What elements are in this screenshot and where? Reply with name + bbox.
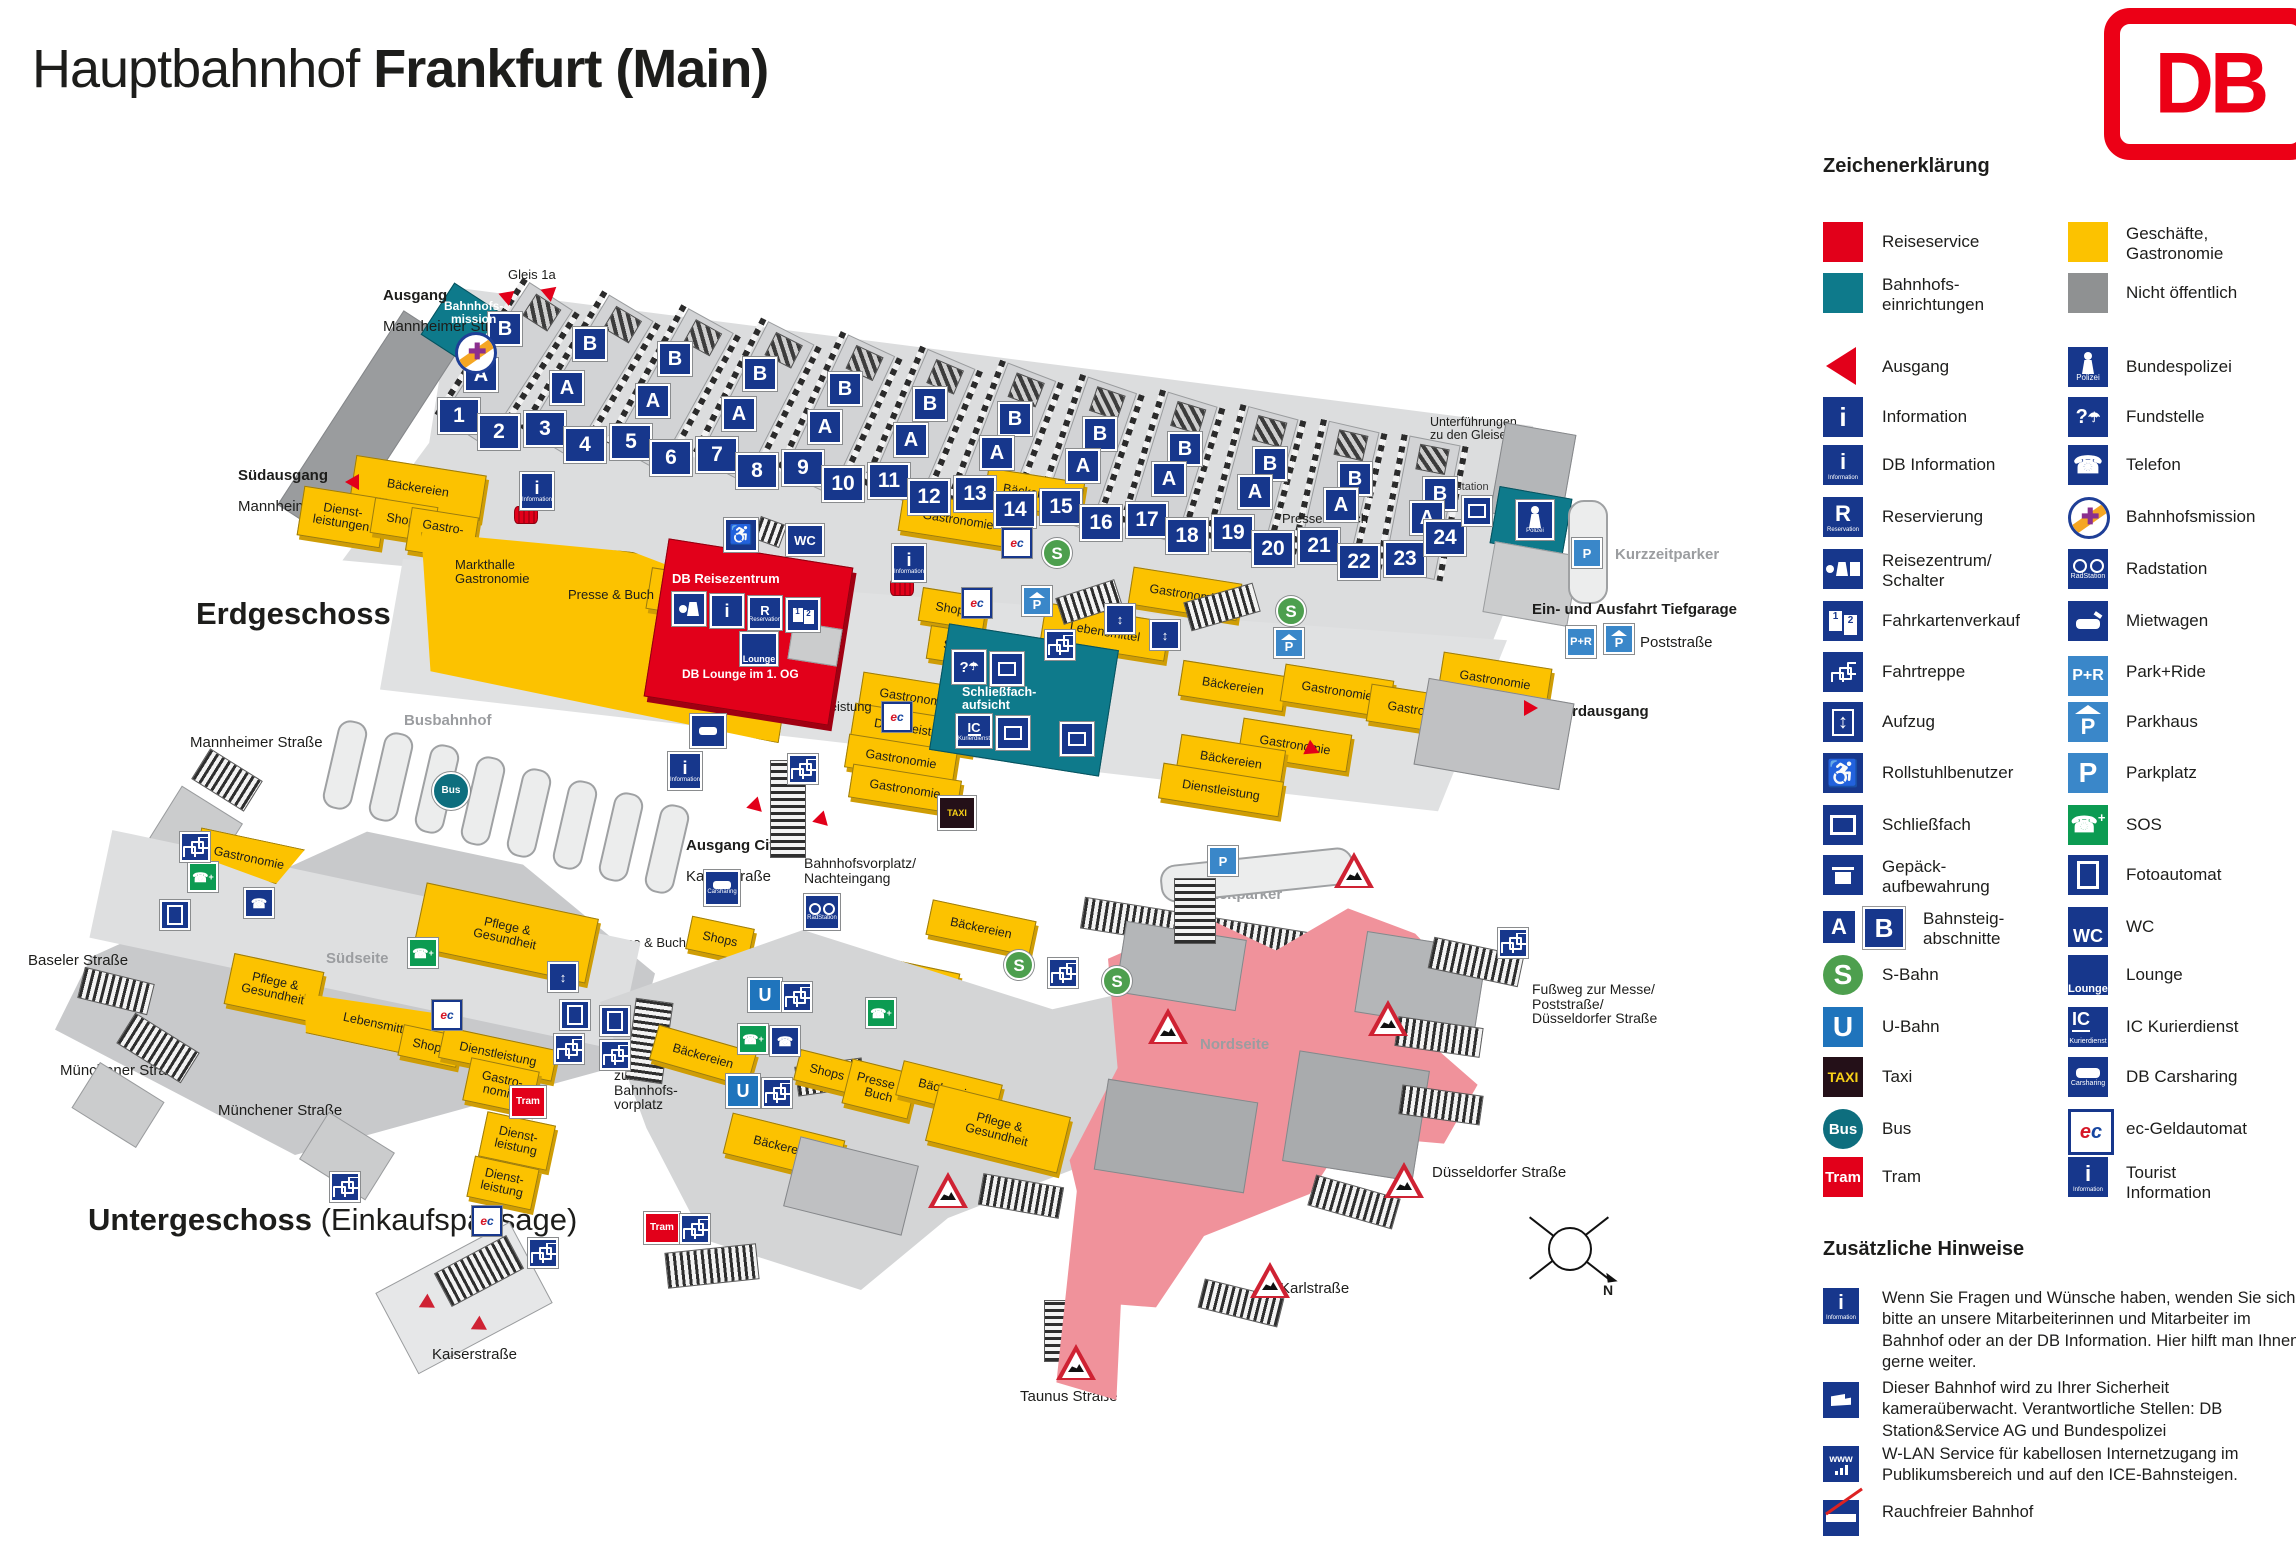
platform-number: 19 (1212, 515, 1254, 551)
escalator-icon (1048, 958, 1078, 988)
esc-glyph (530, 1243, 556, 1263)
parkhaus-icon: P (1022, 586, 1052, 616)
north-block (1282, 1050, 1430, 1181)
bus-bay (366, 730, 415, 824)
schliessfach-icon (1060, 722, 1094, 756)
polizei-glyph: Polizei (2076, 374, 2100, 382)
mietwagen-icon (2068, 601, 2108, 641)
section-marker-a: A (1066, 449, 1100, 483)
esc-glyph (784, 987, 810, 1007)
i-glyph: i (1838, 1292, 1844, 1315)
ic-kurierdienst-icon: ICKurierdienst (956, 714, 992, 748)
wc-glyph: WC (794, 534, 816, 547)
section-marker-b: B (573, 327, 607, 361)
section-marker-b: B (913, 387, 947, 421)
sos-icon: ☎+ (866, 998, 896, 1028)
ec-c-glyph: c (977, 597, 984, 609)
page-title-regular: Hauptbahnhof (32, 39, 373, 99)
roof-glyph (2075, 705, 2101, 714)
escalator-icon (528, 1238, 558, 1268)
taxi-icon: TAXI (1823, 1057, 1863, 1097)
elevator-icon: ↕ (1105, 604, 1135, 634)
u-bahn-icon: U (748, 978, 782, 1012)
shelf-glyph (1832, 867, 1854, 870)
legend-label: Bundespolizei (2126, 357, 2232, 377)
ec-c-glyph: c (447, 1009, 454, 1021)
stairs-graphic (1174, 878, 1216, 944)
esc-glyph (332, 1177, 358, 1197)
information-icon: iInformation (668, 752, 702, 790)
platform-number: 20 (1252, 531, 1294, 567)
exit-arrow (345, 474, 359, 490)
legend-label: U-Bahn (1882, 1017, 1940, 1037)
information-icon: i (1823, 397, 1863, 437)
bahnhofseinrichtungen-swatch (1823, 273, 1863, 313)
reiseservice-swatch (1823, 222, 1863, 262)
s-bahn-icon: S (1004, 950, 1034, 980)
legend-label: WC (2126, 917, 2154, 937)
legend-label: Parkplatz (2126, 763, 2197, 783)
legend-label: Mietwagen (2126, 611, 2208, 631)
legend-label: Park+Ride (2126, 662, 2206, 682)
ec-e-glyph: e (970, 597, 977, 609)
platform-number: 11 (868, 463, 910, 499)
p-glyph: P (2079, 757, 2098, 789)
u-bahn-icon: U (726, 1074, 760, 1108)
untergeschoss-bold: Untergeschoss (88, 1202, 312, 1237)
p-glyph: P (1033, 598, 1042, 611)
ec-geldautomat-icon: ec (472, 1206, 502, 1236)
ec-e-glyph: e (440, 1009, 447, 1021)
mission-cross: ✚ (2081, 504, 2099, 530)
shop-baeckereien: Bäckereien (925, 899, 1036, 956)
section-marker-a: A (636, 384, 670, 418)
platform-number: 16 (1080, 505, 1122, 541)
shop-presse-buch (1250, 648, 1254, 652)
compass: N (1519, 1198, 1619, 1298)
db-logo-text: DB (2155, 35, 2265, 134)
reisezentrum-icon (672, 592, 706, 626)
page-title-bold: Frankfurt (Main) (373, 39, 768, 99)
stairs-graphic (1307, 1174, 1400, 1229)
ic-glyph: IC (968, 721, 981, 736)
note-text: Dieser Bahnhof wird zu Ihrer Sicherheit … (1882, 1378, 2296, 1442)
exit-arrow (1524, 700, 1538, 716)
wheelchair-icon: ♿ (724, 518, 758, 552)
legend-label: Tourist Information (2126, 1163, 2211, 1203)
shop-label: Gastronomie (1301, 679, 1374, 703)
bundespolizei-icon: Polizei (2068, 347, 2108, 387)
esc-glyph (602, 1045, 628, 1065)
information-glyph: Information (1826, 1315, 1856, 1321)
parkplatz-icon: P (2068, 753, 2108, 793)
carsharing-glyph: Carsharing (2071, 1080, 2105, 1087)
shop-label: Pflege & Gesundheit (964, 1109, 1032, 1149)
compass-north-arrow (1606, 1271, 1617, 1282)
platform-number: 17 (1126, 502, 1168, 538)
fotoautomat-icon (160, 900, 190, 930)
tram-glyph: Tram (650, 1223, 674, 1233)
note-text: W-LAN Service für kabellosen Internetzug… (1882, 1444, 2296, 1487)
legend-label: Fahrtreppe (1882, 662, 1965, 682)
s-bahn-icon: S (1042, 538, 1072, 568)
taxi-icon: TAXI (938, 796, 976, 830)
stairs-graphic (978, 1173, 1064, 1219)
information-icon: iInformation (520, 472, 554, 510)
ec-geldautomat-icon: ec (962, 588, 992, 618)
radstation-glyph: RadStation (2071, 573, 2106, 580)
bus-glyph: Bus (442, 786, 461, 796)
person-glyph (1531, 506, 1539, 514)
bahnsteigabschnitte-icon: A B (1823, 907, 1913, 947)
section-marker-a: A (1238, 475, 1272, 509)
section-a-glyph: A (1823, 911, 1855, 943)
esc-glyph (790, 759, 816, 779)
fahrtreppe-icon (1823, 652, 1863, 692)
telefon-icon: ☎ (770, 1026, 800, 1056)
muenchener-label-2: Münchener Straße (218, 1102, 342, 1119)
page-title: Hauptbahnhof Frankfurt (Main) (32, 38, 768, 100)
suedausgang-bold: Südausgang (238, 467, 328, 484)
platform-number: 23 (1384, 541, 1426, 577)
kurzzeitparker-label: Kurzzeitparker (1615, 546, 1719, 563)
legend-label: Fahrkartenverkauf (1882, 611, 2020, 631)
escalator-icon (554, 1034, 584, 1064)
ticket1-glyph: 1 (793, 608, 803, 622)
fundstelle-icon: ?☂ (2068, 397, 2108, 437)
key-glyph (2094, 611, 2103, 619)
legend-label: IC Kurierdienst (2126, 1017, 2238, 1037)
ic-glyph: IC (2072, 1009, 2090, 1032)
counter-glyph (1850, 562, 1860, 576)
legend-label: S-Bahn (1882, 965, 1939, 985)
locker-glyph (1068, 732, 1086, 746)
locker-glyph (1468, 504, 1486, 518)
mission-circle: ✚ (2068, 497, 2110, 539)
esc-step (198, 837, 208, 849)
stairs-graphic (664, 1243, 759, 1288)
reservierung-icon: RReservation (1823, 497, 1863, 537)
ec-geldautomat-icon: ec (432, 1000, 462, 1030)
esc-glyph (1830, 662, 1856, 682)
duesseldorfer-label: Düsseldorfer Straße (1432, 1164, 1566, 1181)
u-glyph: U (737, 1082, 750, 1100)
escalator-icon (600, 1040, 630, 1070)
shop-label: Pflege & Gesundheit (240, 969, 308, 1007)
fotoautomat-icon (2068, 855, 2108, 895)
esc-step (1063, 635, 1073, 647)
escalator-icon (330, 1172, 360, 1202)
rollstuhlbenutzer-icon: ♿ (1823, 753, 1863, 793)
fahrkarten-icon: 12 (786, 598, 820, 632)
ec-geldautomat-icon: ec (1002, 528, 1032, 558)
s-glyph: S (1111, 973, 1122, 990)
platform-number: 4 (564, 427, 606, 463)
einausfahrt-label: Ein- und Ausfahrt Tiefgarage (1532, 602, 1737, 618)
lounge-glyph: Lounge (2068, 983, 2108, 995)
compass-north-label: N (1603, 1282, 1613, 1298)
information-icon: iInformation (892, 544, 926, 582)
suedseite-label: Südseite (326, 950, 389, 967)
stairs-hatch (522, 294, 561, 332)
db-reisezentrum-label: DB Reisezentrum (672, 572, 780, 586)
karlstrasse-label: Karlstraße (1280, 1280, 1349, 1297)
stairs-hatch (603, 306, 642, 344)
erdgeschoss-label: Erdgeschoss (196, 596, 391, 632)
esc-step (348, 1177, 358, 1189)
section-marker-a: A (1324, 488, 1358, 522)
platform-number: 13 (954, 476, 996, 512)
ec-c-glyph: c (1017, 537, 1024, 549)
legend-label: Rollstuhlbenutzer (1882, 763, 2013, 783)
exit-arrow (810, 810, 828, 829)
section-marker-a: A (808, 410, 842, 444)
carsharing-glyph: Carsharing (707, 889, 736, 895)
park-ride-icon: P+R (1566, 626, 1596, 658)
information-glyph: Information (1828, 475, 1858, 481)
bus-bay (550, 778, 599, 872)
shop-label: Pflege & Gesundheit (472, 914, 540, 952)
esc-step (698, 1219, 708, 1231)
wlan-icon: www (1823, 1446, 1859, 1482)
legend-label: Reservierung (1882, 507, 1983, 527)
i-glyph: i (1840, 449, 1846, 475)
ec-c-glyph: c (2091, 1121, 2102, 1144)
db-information-icon: iInformation (1823, 445, 1863, 485)
esc-step (1516, 933, 1526, 945)
legend-label: Information (1882, 407, 1967, 427)
s-glyph: S (1051, 545, 1062, 562)
park-ride-icon: P+R (2068, 652, 2108, 700)
car-glyph (2076, 619, 2100, 629)
esc-step (1847, 662, 1856, 675)
escalator-icon (762, 1078, 792, 1108)
ic-kurierdienst-icon: ICKurierdienst (2068, 1007, 2108, 1047)
car-glyph (713, 881, 731, 889)
wc-glyph: WC (2073, 926, 2103, 947)
legend-heading: Zeichenerklärung (1823, 155, 1990, 178)
kaiserstrasse-label: Kaiserstraße (432, 1346, 517, 1363)
legend-label: ec-Geldautomat (2126, 1119, 2247, 1139)
esc-glyph (1050, 963, 1076, 983)
parkhaus-icon: P (1604, 624, 1634, 654)
person-glyph (679, 605, 687, 613)
section-marker-a: A (550, 371, 584, 405)
locker-glyph (1830, 815, 1856, 835)
platform-number: 8 (736, 453, 778, 489)
platform-number: 9 (782, 450, 824, 486)
presse-buch-label: Presse & Buch (568, 588, 654, 602)
r-glyph: R (760, 604, 769, 617)
esc-glyph (682, 1219, 708, 1239)
esc-step (546, 1243, 556, 1255)
escalator-icon (1498, 928, 1528, 958)
esc-step (618, 1045, 628, 1057)
taxi-glyph: TAXI (1828, 1069, 1859, 1085)
information-glyph: Information (894, 569, 924, 575)
shop-label: Bäckereien (1199, 749, 1263, 771)
legend-label: Bahnsteig- abschnitte (1923, 909, 2004, 949)
legend-label: Radstation (2126, 559, 2207, 579)
www-glyph: www (1829, 1454, 1852, 1465)
station-map-page: Hauptbahnhof Frankfurt (Main) DB Bahnhof… (0, 0, 2296, 1548)
booth-glyph (607, 1011, 623, 1031)
parkhaus-icon: P (2068, 702, 2108, 742)
platform-number: 14 (994, 492, 1036, 528)
platform-number: 1 (438, 398, 480, 434)
case-glyph (1835, 872, 1851, 884)
legend-label: Fundstelle (2126, 407, 2204, 427)
polizei-glyph: Polizei (1526, 528, 1544, 534)
person-glyph (1826, 565, 1834, 573)
busbahnhof-label: Busbahnhof (404, 712, 492, 729)
section-marker-a: A (1152, 462, 1186, 496)
escalator-icon (782, 982, 812, 1012)
platform-number: 10 (822, 466, 864, 502)
esc-step (800, 987, 810, 999)
reisezentrum-icon (1823, 549, 1863, 589)
tram-glyph: Tram (1825, 1169, 1861, 1186)
case-glyph (998, 662, 1016, 676)
untergeschoss-reg: (Einkaufspassage) (312, 1202, 577, 1237)
sos-icon: ☎+ (2068, 805, 2108, 845)
platform-number: 22 (1338, 544, 1380, 580)
kurierdienst-glyph: Kurierdienst (2069, 1038, 2106, 1045)
reservation-glyph: Reservation (1827, 527, 1859, 533)
stairs-hatch (1415, 444, 1449, 475)
ec-geldautomat-icon: ec (882, 702, 912, 732)
bus-icon: Bus (1823, 1109, 1863, 1149)
p-glyph: P (1285, 640, 1294, 653)
ec-e-glyph: e (890, 711, 897, 723)
legend-label: Parkhaus (2126, 712, 2198, 732)
car-glyph (699, 727, 717, 735)
kurierdienst-glyph: Kurierdienst (958, 736, 990, 742)
nicht-oeffentlich-swatch (2068, 273, 2108, 313)
legend-label: Nicht öffentlich (2126, 283, 2237, 303)
fotoautomat-icon (600, 1006, 630, 1036)
section-marker-b: B (1083, 417, 1117, 451)
esc-glyph (1500, 933, 1526, 953)
bike-glyph (809, 903, 835, 915)
schliessfach-icon (1462, 496, 1492, 526)
booth-glyph (567, 1005, 583, 1025)
elevator-icon: ↕ (548, 962, 578, 992)
esc-step (1066, 963, 1076, 975)
taxi-glyph: TAXI (947, 809, 967, 818)
ticket2-glyph: 2 (1844, 615, 1857, 635)
shop-label: Dienst- leistung (493, 1124, 540, 1158)
bundespolizei-icon: Polizei (1516, 500, 1554, 540)
person-glyph (1836, 562, 1848, 576)
escalator-icon (1045, 630, 1075, 660)
fotoautomat-icon (560, 1000, 590, 1030)
pr-glyph: P+R (2072, 667, 2104, 685)
platform-number: 24 (1424, 520, 1466, 556)
s-glyph: S (1013, 957, 1024, 974)
information-glyph: Information (670, 777, 700, 783)
note-text: Wenn Sie Fragen und Wünsche haben, wende… (1882, 1288, 2296, 1374)
schliessfachaufsicht-label: Schließfach- aufsicht (962, 686, 1036, 712)
s-bahn-icon: S (1823, 955, 1863, 995)
carsharing-icon: Carsharing (704, 870, 740, 906)
platform-number: 6 (650, 440, 692, 476)
esc-step (780, 1083, 790, 1095)
section-marker-b: B (998, 402, 1032, 436)
compass-circle (1548, 1227, 1592, 1271)
markthalle-label: Markthalle Gastronomie (455, 558, 529, 585)
lounge-glyph: Lounge (743, 655, 776, 664)
tram-icon: Tram (510, 1086, 546, 1118)
section-marker-a: A (894, 423, 928, 457)
ec-geldautomat-icon: ec (2068, 1109, 2114, 1155)
p-glyph: P (1583, 547, 1592, 560)
parkplatz-icon: P (1208, 846, 1238, 876)
wc-icon: WC (2068, 907, 2108, 947)
nordseite-label: Nordseite (1200, 1036, 1269, 1053)
stairs-hatch (1252, 415, 1288, 448)
information-glyph: Information (2073, 1187, 2103, 1193)
platform-number: 2 (478, 414, 520, 450)
platform-number: 12 (908, 479, 950, 515)
sos-icon: ☎+ (408, 938, 438, 968)
ec-e-glyph: e (480, 1215, 487, 1227)
u-glyph: U (759, 986, 772, 1004)
section-b-glyph: B (1863, 907, 1905, 949)
section-marker-b: B (658, 342, 692, 376)
tram-icon: Tram (644, 1212, 680, 1244)
escalator-icon (180, 832, 210, 862)
section-marker-a: A (980, 436, 1014, 470)
ec-e-glyph: e (1010, 537, 1017, 549)
tram-glyph: Tram (516, 1097, 540, 1107)
legend-label: Geschäfte, Gastronomie (2126, 224, 2223, 264)
fundstelle-icon: ?☂ (952, 650, 986, 684)
radstation-icon: RadStation (2068, 549, 2108, 589)
db-logo: DB (2104, 8, 2296, 160)
ticket2-glyph: 2 (804, 610, 814, 624)
s-glyph: S (1834, 959, 1853, 991)
i-glyph: i (1839, 402, 1846, 433)
legend-label: DB Carsharing (2126, 1067, 2238, 1087)
ausgang-city-bold: Ausgang City (686, 837, 783, 854)
notes-heading: Zusätzliche Hinweise (1823, 1238, 2024, 1261)
i-glyph: i (2085, 1161, 2091, 1187)
elevator-icon: ↕ (1150, 620, 1180, 650)
legend-label: Fotoautomat (2126, 865, 2221, 885)
pr-glyph: P+R (1570, 637, 1592, 648)
stairs-hatch (1333, 429, 1368, 461)
sos-icon: ☎+ (738, 1024, 768, 1054)
tram-icon: Tram (1823, 1157, 1863, 1197)
shop-label: Bäckereien (949, 915, 1013, 940)
sos-icon: ☎+ (188, 862, 218, 892)
fussweg-label: Fußweg zur Messe/ Poststraße/ Düsseldorf… (1532, 982, 1657, 1026)
s-bahn-icon: S (1102, 966, 1132, 996)
schliessfach-icon (1823, 805, 1863, 845)
bus-bay (642, 802, 691, 896)
note-text: Rauchfreier Bahnhof (1882, 1502, 2296, 1523)
s-bahn-icon: S (1276, 596, 1306, 626)
geschaefte-swatch (2068, 222, 2108, 262)
esc-glyph (764, 1083, 790, 1103)
poststrasse-label: Poststraße (1640, 634, 1713, 651)
section-marker-a: A (722, 397, 756, 431)
bahnhofsmission-logo-icon: ✚ (455, 332, 497, 374)
shop-label: Bäckereien (1201, 675, 1265, 697)
person-glyph (2082, 360, 2094, 374)
bahnhofsmission-icon: ✚ (2068, 497, 2110, 539)
